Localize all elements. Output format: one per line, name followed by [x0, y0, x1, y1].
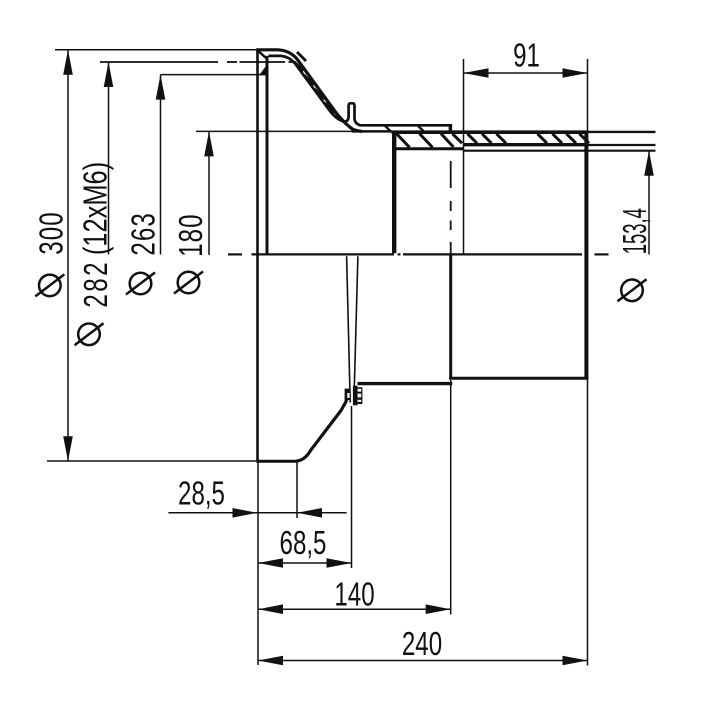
svg-text:140: 140 — [334, 577, 374, 614]
svg-text:263: 263 — [126, 212, 163, 255]
svg-text:(12xM6): (12xM6) — [77, 162, 114, 255]
svg-text:282: 282 — [78, 260, 115, 308]
svg-text:240: 240 — [402, 626, 442, 663]
svg-text:28,5: 28,5 — [178, 476, 225, 513]
svg-text:153,4: 153,4 — [616, 208, 653, 254]
svg-text:300: 300 — [34, 211, 71, 254]
svg-text:91: 91 — [513, 38, 540, 75]
svg-text:180: 180 — [173, 213, 210, 256]
svg-text:68,5: 68,5 — [280, 525, 327, 562]
